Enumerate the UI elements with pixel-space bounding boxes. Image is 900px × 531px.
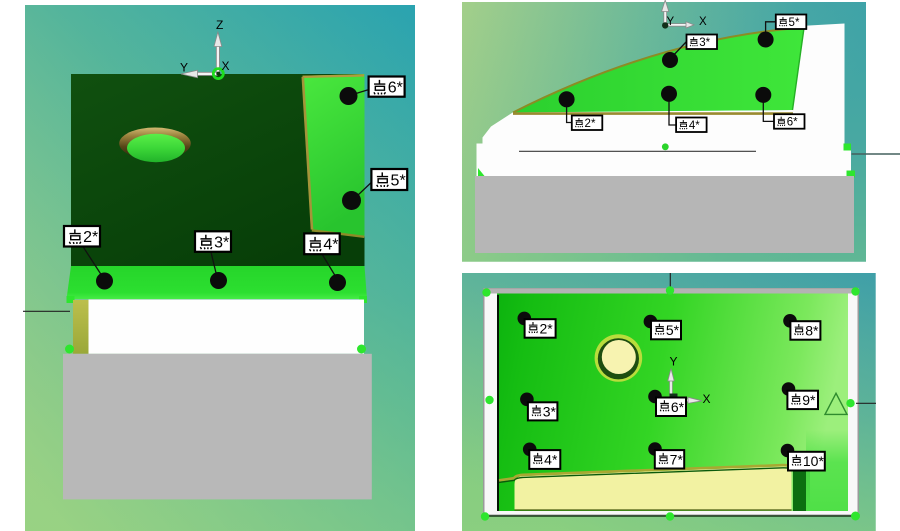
svg-text:5*: 5*	[391, 172, 406, 189]
svg-text:3*: 3*	[543, 403, 557, 419]
svg-text:2*: 2*	[539, 321, 553, 337]
svg-text:6*: 6*	[388, 79, 403, 96]
svg-text:7*: 7*	[670, 451, 684, 467]
svg-text:Y: Y	[180, 61, 188, 75]
svg-text:6*: 6*	[671, 399, 685, 415]
svg-text:Y: Y	[667, 16, 675, 28]
svg-text:9*: 9*	[802, 392, 816, 408]
svg-text:5*: 5*	[666, 322, 680, 338]
svg-text:3*: 3*	[214, 234, 229, 251]
svg-text:X: X	[699, 16, 707, 28]
svg-text:Y: Y	[670, 355, 678, 369]
svg-text:4*: 4*	[689, 120, 700, 132]
svg-text:10*: 10*	[803, 453, 825, 469]
svg-text:8*: 8*	[805, 323, 819, 339]
svg-text:4*: 4*	[323, 237, 338, 254]
svg-text:6*: 6*	[787, 117, 798, 129]
svg-text:3*: 3*	[699, 37, 710, 49]
svg-text:Z: Z	[216, 18, 223, 32]
svg-text:4*: 4*	[544, 452, 558, 468]
svg-text:X: X	[222, 59, 230, 73]
svg-text:X: X	[703, 392, 711, 406]
svg-text:2*: 2*	[585, 118, 596, 130]
svg-text:2*: 2*	[83, 229, 98, 246]
svg-text:5*: 5*	[789, 17, 800, 29]
